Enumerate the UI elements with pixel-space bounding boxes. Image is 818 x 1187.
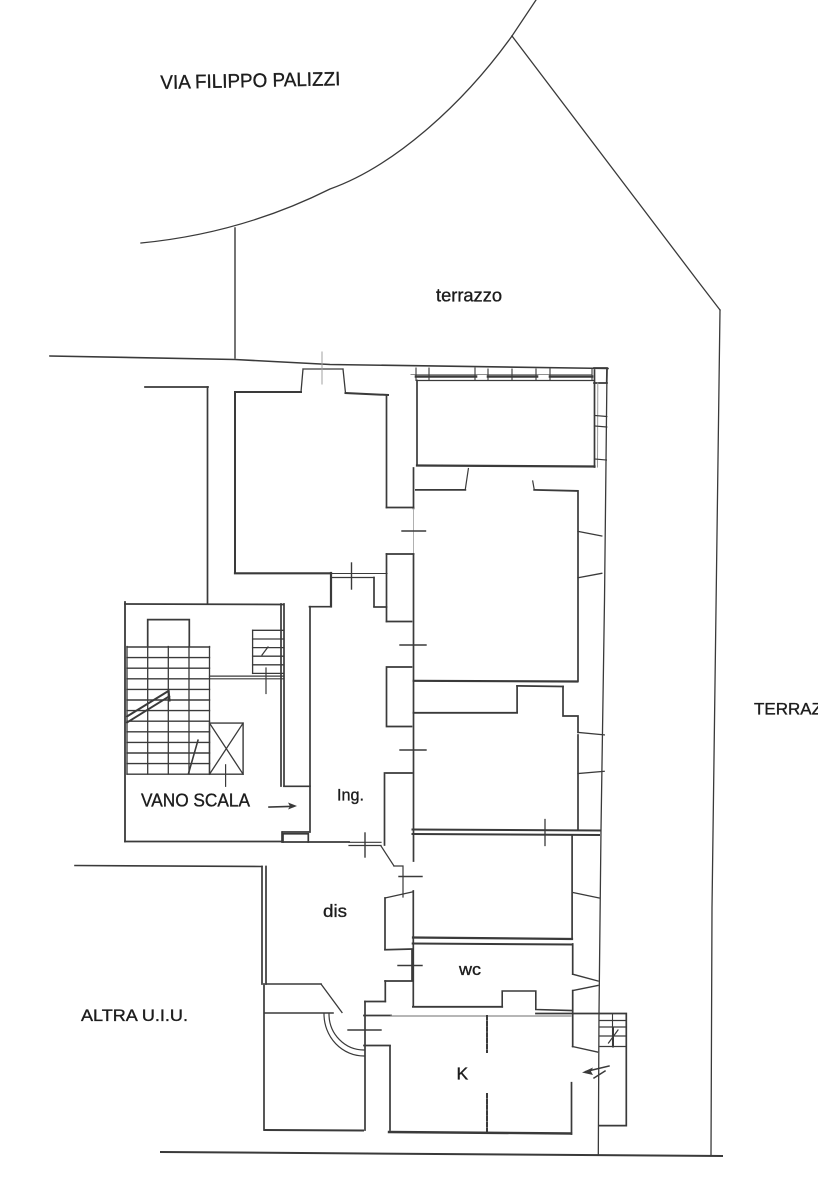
svg-text:TERRAZZO: TERRAZZO [754, 700, 818, 719]
svg-text:Ing.: Ing. [337, 786, 364, 805]
svg-text:dis: dis [323, 901, 347, 921]
svg-text:K: K [457, 1064, 469, 1084]
svg-text:VANO SCALA: VANO SCALA [141, 790, 251, 811]
svg-text:terrazzo: terrazzo [436, 286, 502, 306]
svg-text:wc: wc [458, 961, 481, 979]
svg-text:ALTRA U.I.U.: ALTRA U.I.U. [81, 1007, 188, 1025]
svg-text:VIA FILIPPO PALIZZI: VIA FILIPPO PALIZZI [160, 68, 340, 94]
